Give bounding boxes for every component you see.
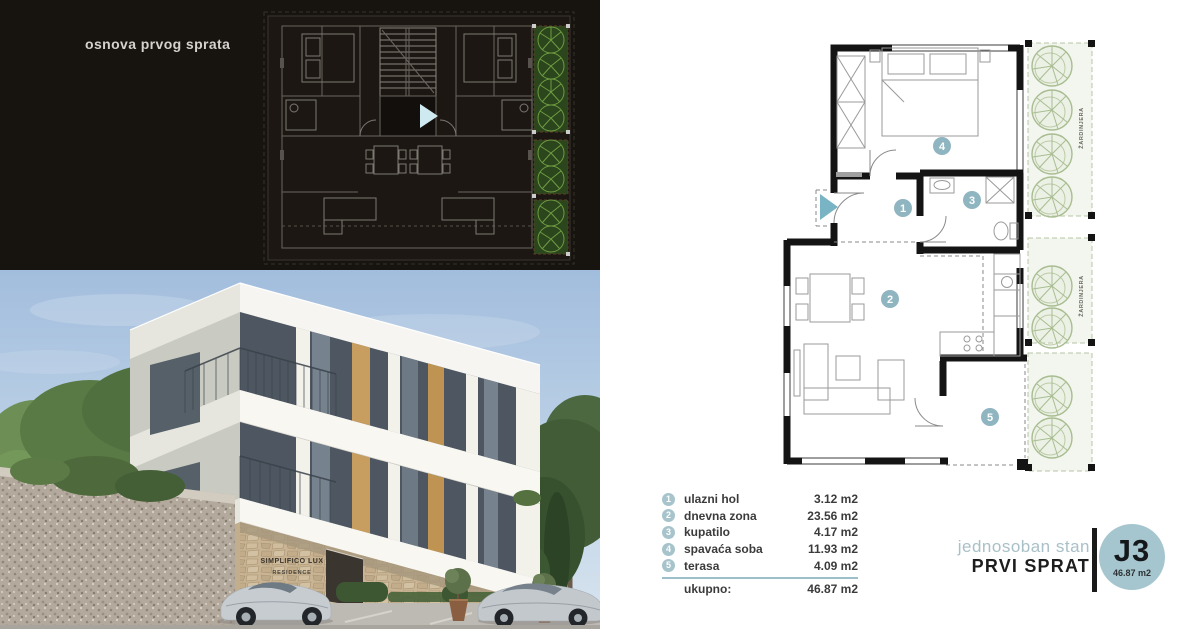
legend-num-badge: 4 bbox=[662, 543, 675, 556]
dark-plan-planters bbox=[532, 24, 570, 256]
room-marker-5: 5 bbox=[981, 408, 999, 426]
dark-floorplan-drawing bbox=[262, 0, 600, 270]
legend-room-label: dnevna zona bbox=[684, 509, 807, 523]
building-render: SIMPLIFICO LUX RESIDENCE bbox=[0, 270, 600, 629]
legend-room-area: 4.09 m2 bbox=[814, 559, 858, 573]
wood-panel bbox=[352, 453, 370, 534]
tree-icon bbox=[1032, 134, 1072, 174]
room-marker-3: 3 bbox=[963, 191, 981, 209]
tree-icon bbox=[1032, 46, 1072, 86]
tree-icon bbox=[1032, 266, 1072, 306]
title-divider-bar bbox=[1092, 528, 1097, 592]
unit-badge: J3 46.87 m2 bbox=[1099, 524, 1165, 590]
planter-strip: ŽARDINJERA ŽARDINJERA bbox=[1025, 40, 1095, 471]
dark-panel-title: osnova prvog sprata bbox=[85, 36, 230, 52]
room-legend: 1 ulazni hol 3.12 m2 2 dnevna zona 23.56… bbox=[662, 491, 858, 597]
left-column: osnova prvog sprata bbox=[0, 0, 600, 629]
room-marker-2: 2 bbox=[881, 290, 899, 308]
legend-room-area: 11.93 m2 bbox=[808, 542, 858, 556]
wood-panel bbox=[352, 343, 370, 426]
tree-icon bbox=[1032, 418, 1072, 458]
legend-room-area: 23.56 m2 bbox=[807, 509, 858, 523]
entrance-arrow-icon bbox=[820, 194, 838, 220]
wall-corner bbox=[1017, 459, 1028, 470]
legend-num-badge: 5 bbox=[662, 559, 675, 572]
building-sign-line1: SIMPLIFICO LUX bbox=[261, 558, 324, 565]
legend-num-badge: 1 bbox=[662, 493, 675, 506]
legend-num-badge: 2 bbox=[662, 509, 675, 522]
legend-row: 1 ulazni hol 3.12 m2 bbox=[662, 491, 858, 508]
sliding-door bbox=[836, 172, 862, 177]
planter-label: ŽARDINJERA bbox=[1077, 275, 1085, 316]
tree-icon bbox=[1032, 90, 1072, 130]
door-arcs bbox=[834, 150, 946, 426]
unit-area: 46.87 m2 bbox=[1099, 568, 1165, 578]
wood-panel bbox=[428, 473, 444, 553]
room-marker-1: 1 bbox=[894, 199, 912, 217]
svg-text:5: 5 bbox=[987, 412, 993, 424]
unit-subtitle: jednosoban stan bbox=[958, 538, 1090, 557]
legend-num-badge: 3 bbox=[662, 526, 675, 539]
unit-panel: ŽARDINJERA ŽARDINJERA bbox=[600, 0, 1200, 629]
legend-total-label: ukupno: bbox=[684, 582, 807, 596]
building-sign-line2: RESIDENCE bbox=[272, 570, 311, 576]
curb bbox=[0, 625, 600, 629]
tree-icon bbox=[1032, 376, 1072, 416]
building-photo: SIMPLIFICO LUX RESIDENCE bbox=[0, 270, 600, 629]
windows bbox=[784, 45, 1023, 464]
room-marker-4: 4 bbox=[933, 137, 951, 155]
legend-total-value: 46.87 m2 bbox=[807, 582, 858, 596]
tree-icon bbox=[1032, 177, 1072, 217]
brochure-page: osnova prvog sprata bbox=[0, 0, 1200, 629]
planter-label: ŽARDINJERA bbox=[1077, 107, 1085, 148]
unit-floor-title: PRVI SPRAT bbox=[958, 557, 1090, 577]
unit-floorplan-drawing: ŽARDINJERA ŽARDINJERA bbox=[770, 28, 1160, 488]
legend-total-row: ukupno: 46.87 m2 bbox=[662, 581, 858, 597]
legend-row: 2 dnevna zona 23.56 m2 bbox=[662, 508, 858, 525]
unit-title-block: jednosoban stan PRVI SPRAT bbox=[958, 538, 1090, 576]
legend-row: 4 spavaća soba 11.93 m2 bbox=[662, 541, 858, 558]
legend-room-label: kupatilo bbox=[684, 525, 814, 539]
svg-text:3: 3 bbox=[969, 195, 975, 207]
legend-room-label: spavaća soba bbox=[684, 542, 808, 556]
unit-code: J3 bbox=[1099, 535, 1165, 566]
legend-row: 3 kupatilo 4.17 m2 bbox=[662, 524, 858, 541]
legend-divider bbox=[662, 577, 858, 579]
svg-text:4: 4 bbox=[939, 141, 946, 153]
tree-icon bbox=[1032, 308, 1072, 348]
legend-room-area: 3.12 m2 bbox=[814, 492, 858, 506]
dark-floorplan-panel: osnova prvog sprata bbox=[0, 0, 600, 270]
svg-text:1: 1 bbox=[900, 203, 906, 215]
legend-room-label: terasa bbox=[684, 559, 814, 573]
walls bbox=[787, 45, 1027, 464]
svg-text:2: 2 bbox=[887, 294, 893, 306]
wood-panel bbox=[428, 363, 444, 445]
legend-room-area: 4.17 m2 bbox=[814, 525, 858, 539]
legend-room-label: ulazni hol bbox=[684, 492, 814, 506]
legend-row: 5 terasa 4.09 m2 bbox=[662, 557, 858, 574]
